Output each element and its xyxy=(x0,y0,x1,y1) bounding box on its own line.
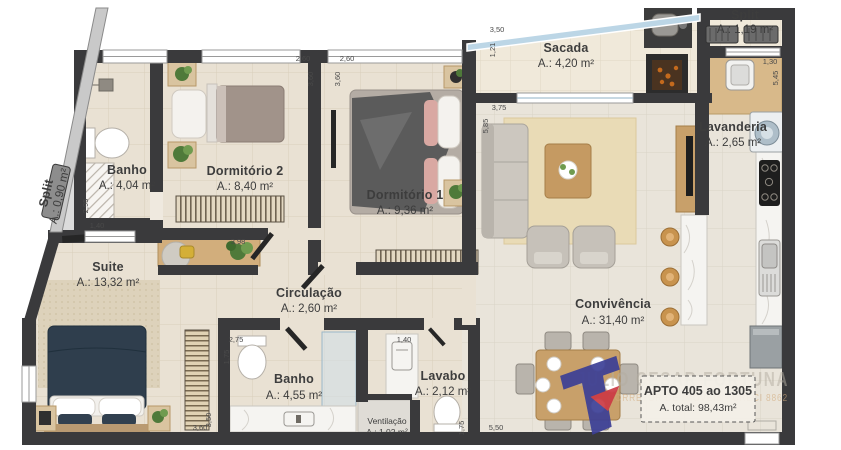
room-area-sacada: A.: 4,20 m² xyxy=(538,58,594,70)
flower-vase-icon xyxy=(559,161,577,179)
dorm1-pillow xyxy=(438,96,460,148)
room-label-ventilacao: Ventilação xyxy=(367,416,406,426)
room-area-dorm1: A.: 9,36 m² xyxy=(377,205,433,217)
window xyxy=(85,231,135,242)
dim-label: 1,30 xyxy=(763,57,778,66)
dim-label: 2,60 xyxy=(340,54,355,63)
wall xyxy=(158,265,258,275)
room-area-convivencia: A.: 31,40 m² xyxy=(582,315,645,327)
dorm2-bed xyxy=(217,86,284,142)
room-label-lavanderia: Lavanderia xyxy=(699,120,768,134)
wall xyxy=(150,52,163,192)
door-gap xyxy=(280,318,324,330)
armchair-seat xyxy=(534,252,562,264)
dorm2-furniture xyxy=(168,62,284,222)
room-label-lavabo: Lavabo xyxy=(421,369,466,383)
dorm2-wardrobe xyxy=(176,196,284,222)
window xyxy=(202,50,300,63)
dim-label: 3,98 xyxy=(231,237,246,246)
dim-label: 1,21 xyxy=(488,43,497,58)
door-gap xyxy=(150,192,163,220)
fridge-top xyxy=(753,329,779,335)
dim-label: 1,40 xyxy=(90,221,105,230)
apto-number: APTO 405 ao 1305 xyxy=(644,384,752,398)
corner-sink xyxy=(99,79,113,91)
room-label-banho1: Banho xyxy=(107,163,147,177)
room-label-split-right: Split xyxy=(731,8,760,22)
wall xyxy=(356,330,368,402)
dim-label: 3,60 xyxy=(333,72,342,87)
door-gap xyxy=(318,262,356,275)
laundry-sink-basin xyxy=(731,65,749,85)
room-label-suite: Suite xyxy=(92,260,124,274)
dim-label: 1,75 xyxy=(457,421,466,436)
dim-label: 3,60 xyxy=(306,72,315,87)
dim-label: 2,95 xyxy=(81,199,90,214)
dim-label: 2,60 xyxy=(296,54,311,63)
dining-chair xyxy=(583,332,609,350)
room-label-dorm1: Dormitório 1 xyxy=(367,188,444,202)
faucet xyxy=(296,415,301,423)
door-gap xyxy=(424,318,454,330)
wall xyxy=(356,394,412,400)
room-label-sacada: Sacada xyxy=(544,41,590,55)
suite-pillow xyxy=(99,398,141,416)
dim-label: 5,85 xyxy=(481,119,490,134)
photo-frame-icon xyxy=(39,411,51,425)
wall xyxy=(410,400,420,432)
apto-box: APTO 405 ao 1305 A. total: 98,43m² xyxy=(641,376,755,422)
vanity-stool xyxy=(180,246,194,258)
room-area-split-right: A.: 1,19 m² xyxy=(717,24,773,36)
room-label-dorm2: Dormitório 2 xyxy=(207,164,284,178)
window xyxy=(22,366,36,402)
dorm2-bed-sheet xyxy=(217,86,226,142)
wall xyxy=(148,228,270,240)
dorm1-pink-pillow xyxy=(424,100,438,146)
room-label-circulacao: Circulação xyxy=(276,286,342,300)
dim-label: 5,45 xyxy=(771,71,780,86)
dim-label: 5,50 xyxy=(489,423,504,432)
room-area-banho1: A.: 4,04 m² xyxy=(99,180,155,192)
room-area-lavanderia: A.: 2,65 m² xyxy=(705,137,761,149)
suite-headboard xyxy=(44,424,150,432)
shower-glass xyxy=(322,332,356,406)
room-area-circulacao: A.: 2,60 m² xyxy=(281,303,337,315)
bar-stools xyxy=(661,228,679,326)
room-area-dorm2: A.: 8,40 m² xyxy=(217,181,273,193)
room-area-suite: A.: 13,32 m² xyxy=(77,277,140,289)
wall xyxy=(462,40,476,275)
apto-total-area: A. total: 98,43m² xyxy=(659,402,737,414)
dim-label: 3,75 xyxy=(492,103,507,112)
armchair-seat xyxy=(580,252,608,264)
wall xyxy=(468,330,480,432)
dorm2-headboard xyxy=(207,84,217,142)
window xyxy=(726,48,780,56)
wall xyxy=(462,93,517,103)
apto-box-border xyxy=(641,376,755,422)
door-gap xyxy=(462,275,476,325)
room-area-lavabo: A.: 2,12 m² xyxy=(415,386,471,398)
dim-label: 3,50 xyxy=(204,413,213,428)
window xyxy=(103,50,167,63)
wall xyxy=(697,8,710,103)
sink-basin xyxy=(762,244,777,268)
suite-pillow xyxy=(53,398,95,416)
room-label-convivencia: Convivência xyxy=(575,297,652,311)
door-leaf xyxy=(331,110,336,168)
dim-label: 1,40 xyxy=(397,335,412,344)
room-label-banho2: Banho xyxy=(274,372,314,386)
dim-label: 2,75 xyxy=(229,335,244,344)
dim-label: 1,75 xyxy=(222,350,231,365)
sofa-back xyxy=(482,124,494,238)
toilet-icon xyxy=(95,128,129,158)
dorm2-pillow xyxy=(172,90,206,138)
floor-plan: Banho A.: 4,04 m² Dormitório 2 A.: 8,40 … xyxy=(0,0,841,450)
dining-chair xyxy=(516,364,534,394)
door-gap xyxy=(268,228,308,240)
toilet-icon xyxy=(238,345,266,379)
room-area-banho2: A.: 4,55 m² xyxy=(266,390,322,402)
room-area-ventilacao: A.: 1,02 m² xyxy=(366,427,408,437)
wall xyxy=(22,432,795,445)
dim-label: 3,50 xyxy=(490,25,505,34)
tv-icon xyxy=(686,136,693,196)
sliding-door xyxy=(517,93,633,103)
dining-chair xyxy=(545,332,571,350)
